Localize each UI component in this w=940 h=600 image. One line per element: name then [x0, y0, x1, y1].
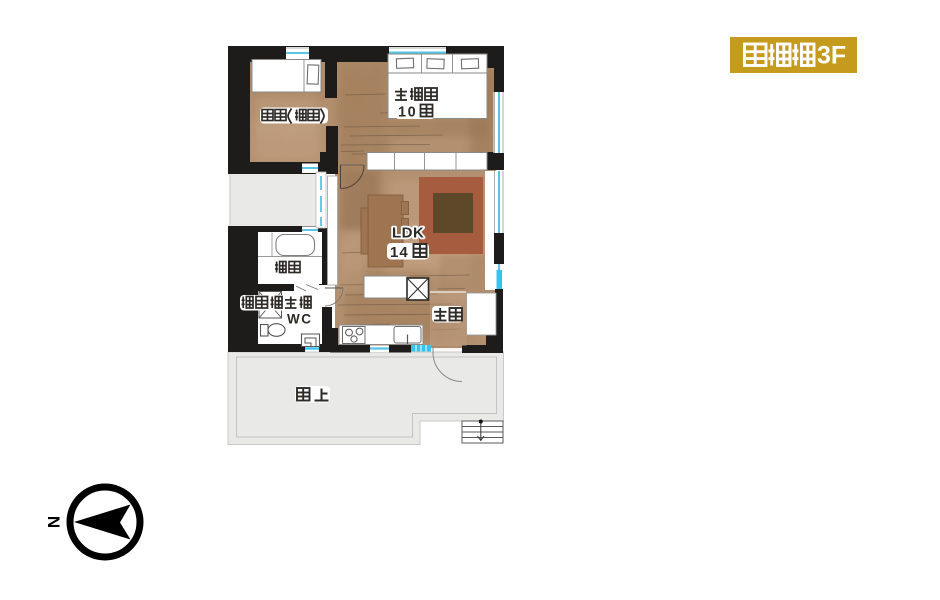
svg-text:LDK: LDK — [392, 225, 424, 242]
svg-text:N: N — [45, 516, 64, 528]
svg-text:3F: 3F — [817, 42, 846, 70]
svg-text:14: 14 — [390, 244, 409, 261]
svg-text:WC: WC — [287, 312, 313, 327]
svg-text:10: 10 — [398, 105, 417, 121]
